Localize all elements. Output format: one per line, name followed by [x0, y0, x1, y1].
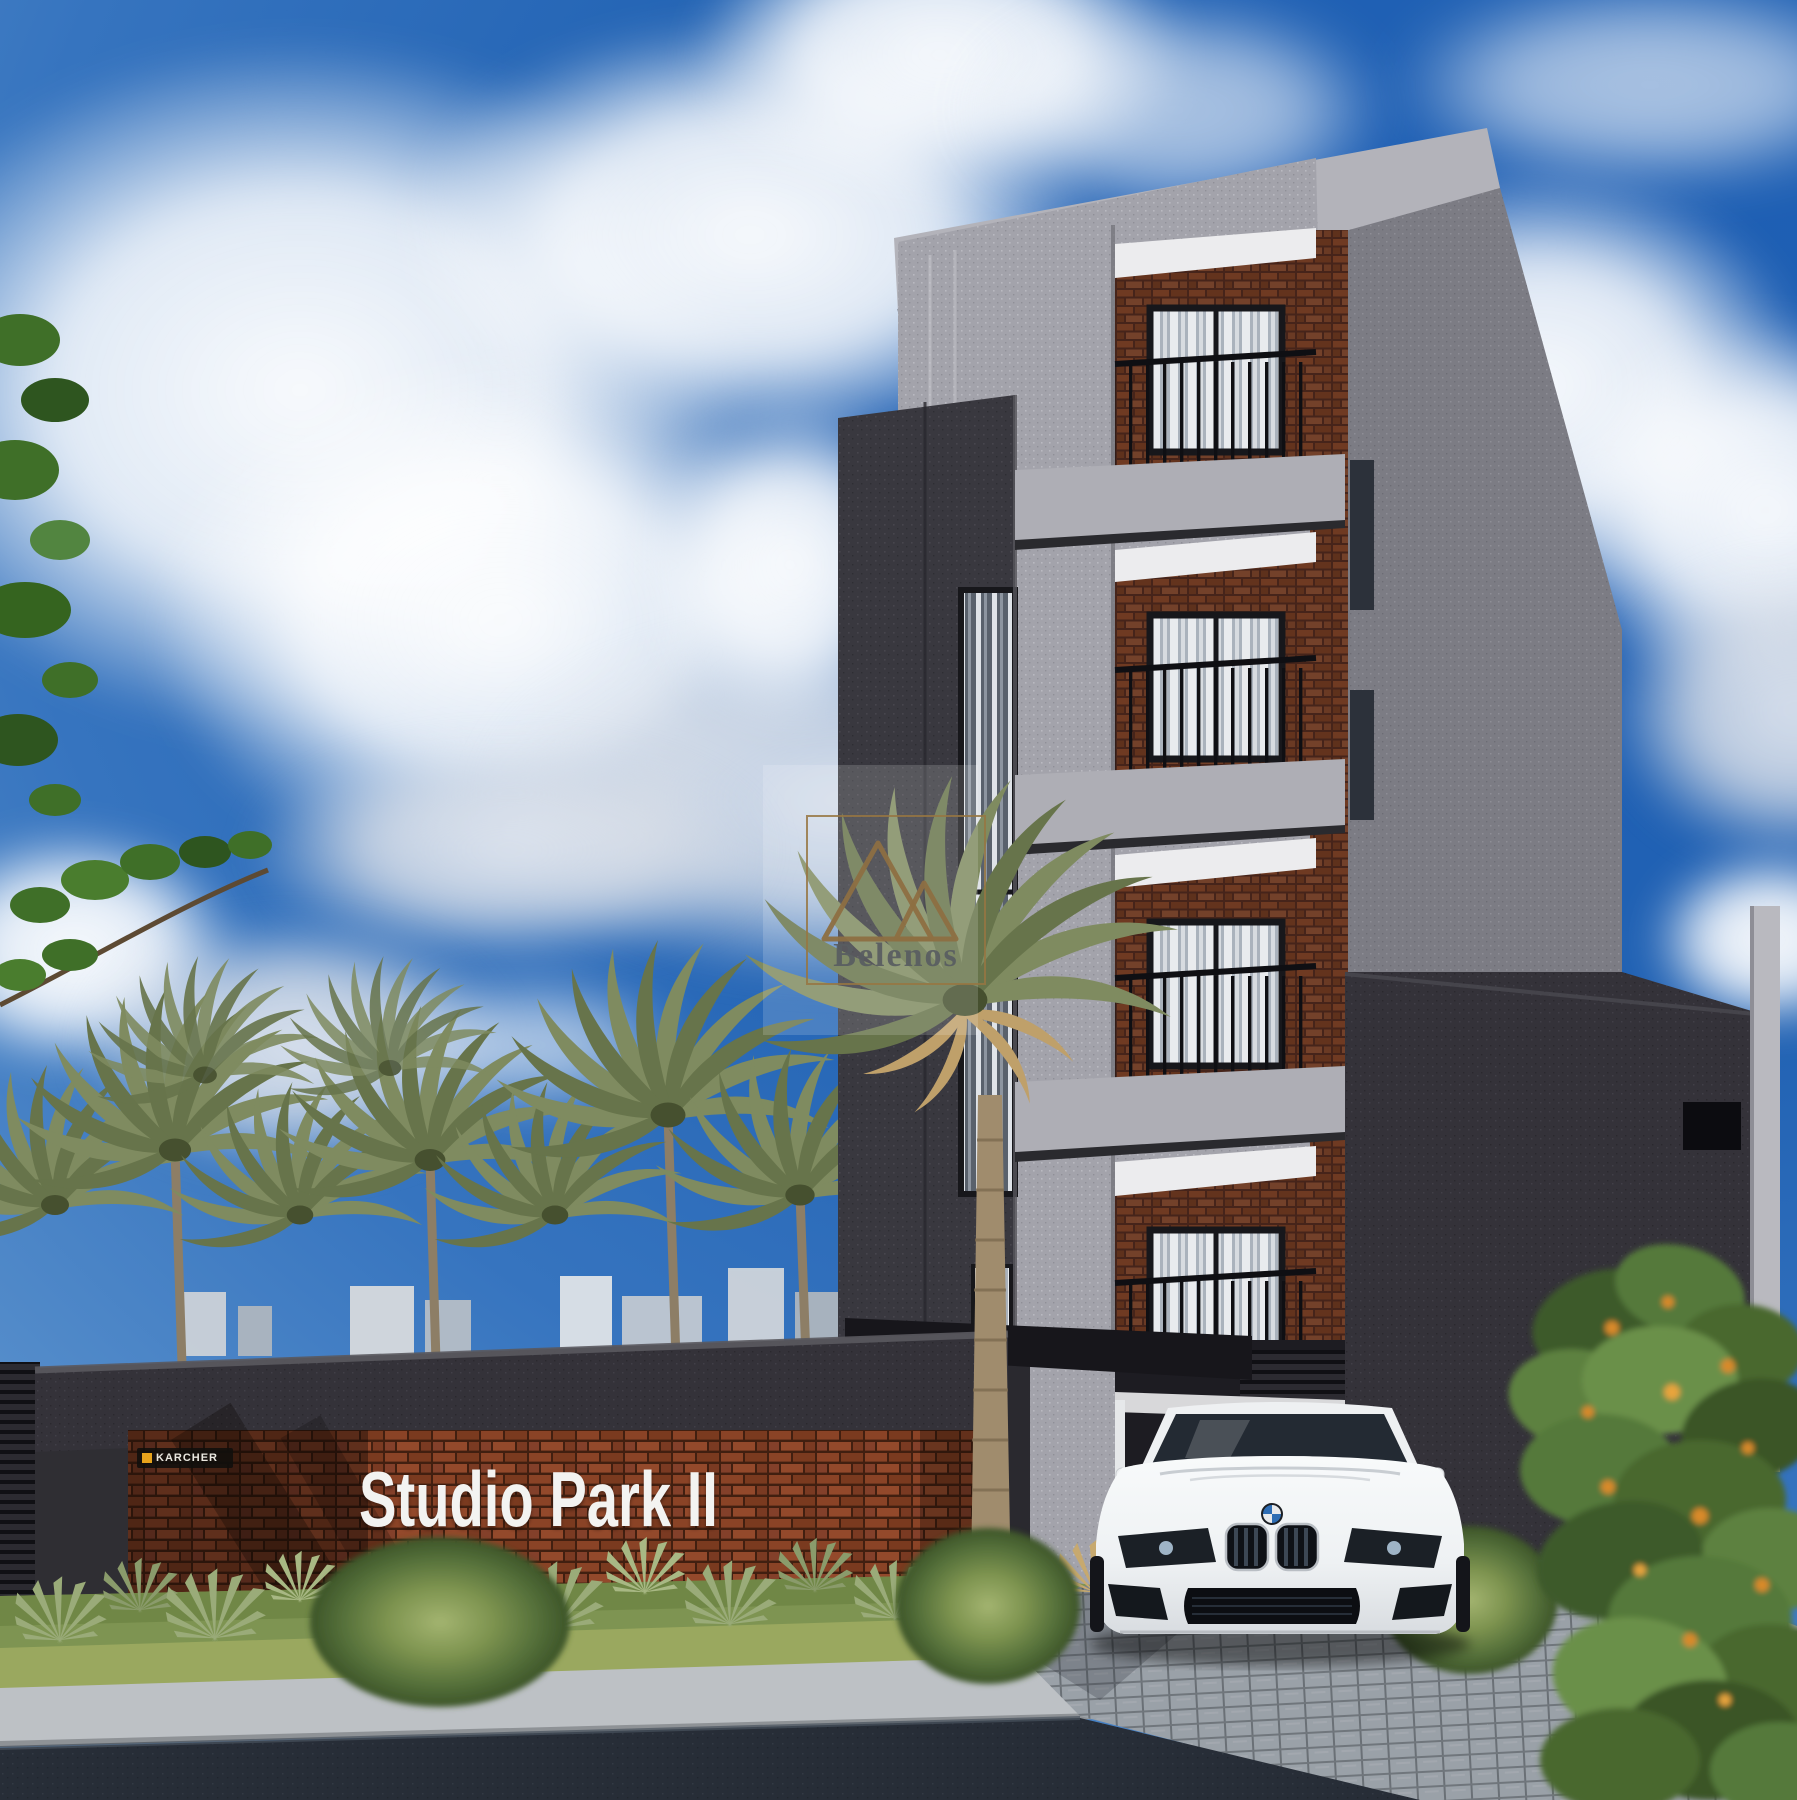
- sign-text: Studio Park II: [359, 1460, 673, 1538]
- side-window: [1350, 460, 1374, 610]
- round-bush: [896, 1528, 1080, 1684]
- corner-intake: [1108, 1584, 1168, 1620]
- side-vent: [1683, 1102, 1741, 1150]
- bmw-roundel-icon: [1261, 1503, 1283, 1525]
- balcony-railing: [1115, 352, 1316, 468]
- left-tree: [0, 314, 272, 1005]
- watermark: Belenos: [763, 765, 978, 1035]
- corner-intake: [1392, 1584, 1452, 1620]
- side-window: [1350, 690, 1374, 820]
- render-canvas: Studio Park II KARCHER Belenos: [0, 0, 1797, 1800]
- balcony-railing: [1115, 658, 1316, 774]
- badge-logo-icon: [142, 1453, 152, 1463]
- balcony-railing: [1115, 966, 1316, 1082]
- wall-badge: KARCHER: [137, 1448, 233, 1468]
- watermark-frame: Belenos: [806, 815, 986, 985]
- watermark-brand: Belenos: [808, 937, 984, 975]
- wheel: [1090, 1556, 1104, 1632]
- badge-label: KARCHER: [156, 1453, 218, 1464]
- wheel: [1456, 1556, 1470, 1632]
- round-bush: [310, 1537, 570, 1707]
